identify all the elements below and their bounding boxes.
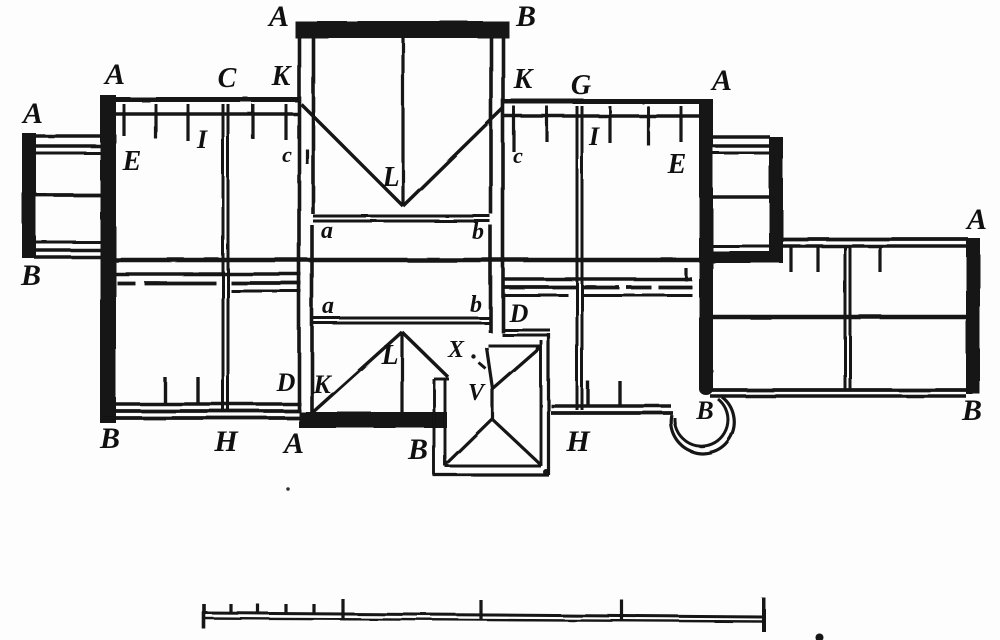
svg-text:D: D <box>276 368 296 397</box>
svg-text:K: K <box>513 64 535 95</box>
svg-text:V: V <box>468 380 486 406</box>
svg-text:A: A <box>282 427 304 460</box>
svg-text:I: I <box>196 125 208 154</box>
svg-text:E: E <box>122 146 142 177</box>
svg-text:D: D <box>509 299 529 328</box>
svg-text:B: B <box>695 396 713 425</box>
svg-text:a: a <box>321 218 333 244</box>
svg-text:B: B <box>99 422 120 455</box>
svg-text:B: B <box>515 0 536 33</box>
svg-text:L: L <box>381 162 399 193</box>
svg-text:c: c <box>282 142 292 167</box>
svg-text:H: H <box>213 425 239 458</box>
svg-text:a: a <box>322 293 334 319</box>
svg-text:K: K <box>312 370 332 399</box>
svg-text:B: B <box>407 433 428 466</box>
svg-text:b: b <box>470 292 482 318</box>
svg-text:A: A <box>21 97 43 130</box>
svg-text:K: K <box>271 61 293 92</box>
svg-text:E: E <box>667 149 687 180</box>
svg-text:G: G <box>571 70 591 101</box>
svg-text:H: H <box>565 425 591 458</box>
svg-text:A: A <box>965 203 987 236</box>
svg-text:c: c <box>513 143 523 168</box>
svg-text:B: B <box>20 259 41 292</box>
svg-text:X: X <box>447 337 465 363</box>
svg-text:I: I <box>588 122 600 151</box>
svg-text:A: A <box>103 58 125 91</box>
svg-text:C: C <box>218 63 237 94</box>
svg-text:B: B <box>961 394 982 427</box>
svg-text:A: A <box>710 64 732 97</box>
svg-text:b: b <box>472 219 484 245</box>
svg-text:L: L <box>380 340 398 371</box>
svg-text:A: A <box>267 0 289 33</box>
